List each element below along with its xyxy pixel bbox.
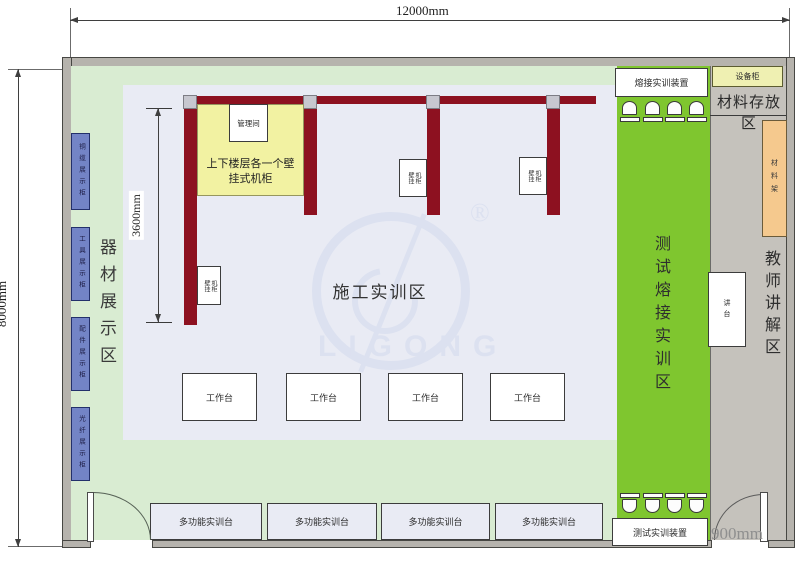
area-label-teacher-zone: 教师讲解区 — [758, 250, 782, 368]
column — [426, 95, 440, 109]
registered-mark-icon: ® — [470, 198, 490, 228]
wall-cabinet: 壁挂机柜 — [197, 266, 221, 305]
chair-icon — [667, 101, 682, 115]
chair-icon — [645, 101, 660, 115]
chair-icon — [622, 101, 637, 115]
wall-cabinet: 壁挂机柜 — [519, 157, 547, 195]
workbench: 工作台 — [286, 373, 361, 421]
chair-icon — [645, 499, 660, 513]
multi-bench: 多功能实训台 — [150, 503, 262, 540]
wall-cabinet-label: 机柜 — [209, 280, 216, 292]
partition-wall-horizontal — [184, 96, 596, 104]
display-cabinet-fiber: 光纤展示柜 — [71, 407, 90, 481]
note-line-2: 挂式机柜 — [198, 172, 303, 187]
chair-icon — [622, 499, 637, 513]
workbench: 工作台 — [388, 373, 463, 421]
splice-training-device: 熔接实训装置 — [615, 68, 708, 97]
chair-icon — [665, 117, 685, 122]
arrow-up-icon — [155, 108, 161, 116]
dim-extension-line — [789, 8, 790, 57]
display-cabinet-parts: 配件展示柜 — [71, 317, 90, 391]
partition-wall-2 — [304, 104, 317, 215]
workbench: 工作台 — [490, 373, 565, 421]
chair-icon — [620, 493, 640, 498]
door-leaf-left — [87, 492, 94, 542]
dim-tick — [146, 322, 172, 323]
wall-cabinet-label: 机柜 — [533, 170, 540, 182]
dim-line-inner — [158, 108, 159, 322]
equipment-cabinet: 设备柜 — [712, 66, 783, 87]
arrow-down-icon — [155, 314, 161, 322]
partition-wall-4 — [547, 104, 560, 215]
column — [183, 95, 197, 109]
chair-icon — [687, 493, 707, 498]
area-label-equipment-display: 器材展示区 — [94, 238, 119, 398]
wall-cabinet-label: 机柜 — [413, 172, 420, 184]
column — [546, 95, 560, 109]
management-room: 管理间 — [229, 104, 268, 142]
floor-plan: 12000mm 8000mm LIGONG ® 施工实训区 上下楼层各一个壁 挂… — [0, 0, 803, 561]
dim-label-inner: 3600mm — [129, 191, 144, 240]
workbench: 工作台 — [182, 373, 257, 421]
wall-bottom-segment — [768, 540, 795, 548]
partition-wall-3 — [427, 104, 440, 215]
test-training-device: 测试实训装置 — [612, 518, 708, 546]
chair-icon — [689, 499, 704, 513]
partition-wall-1 — [184, 104, 197, 325]
dim-label-left: 8000mm — [0, 278, 10, 330]
dim-line-top — [70, 20, 790, 21]
dim-label-top: 12000mm — [393, 3, 452, 19]
column — [303, 95, 317, 109]
dim-line-left — [18, 69, 19, 547]
arrow-up-icon — [15, 69, 21, 77]
dim-label-door: 900mm — [711, 524, 763, 544]
podium: 讲台 — [708, 272, 746, 347]
arrow-right-icon — [782, 17, 790, 23]
multi-bench: 多功能实训台 — [267, 503, 377, 540]
wall-cabinet-label: 壁挂 — [202, 280, 209, 292]
chair-icon — [643, 493, 663, 498]
dim-extension-line — [70, 8, 71, 57]
area-label-test-splice: 测试熔接实训区 — [648, 235, 672, 430]
chair-icon — [687, 117, 707, 122]
chair-icon — [665, 493, 685, 498]
chair-icon — [620, 117, 640, 122]
chair-icon — [667, 499, 682, 513]
multi-bench: 多功能实训台 — [495, 503, 603, 540]
chair-icon — [689, 101, 704, 115]
note-line-1: 上下楼层各一个壁 — [198, 157, 303, 172]
multi-bench: 多功能实训台 — [381, 503, 490, 540]
display-cabinet-tools: 工具展示柜 — [71, 227, 90, 301]
arrow-left-icon — [70, 17, 78, 23]
watermark-brand: LIGONG — [318, 330, 508, 364]
chair-icon — [643, 117, 663, 122]
display-cabinet-copper: 铜缆展示柜 — [71, 133, 90, 210]
wall-cabinet: 壁挂机柜 — [399, 159, 427, 197]
material-rack: 材料架 — [762, 120, 787, 237]
wall-cabinet-label: 壁挂 — [406, 172, 413, 184]
area-label-construction: 施工实训区 — [298, 278, 462, 303]
wall-cabinet-label: 壁挂 — [526, 170, 533, 182]
arrow-down-icon — [15, 539, 21, 547]
